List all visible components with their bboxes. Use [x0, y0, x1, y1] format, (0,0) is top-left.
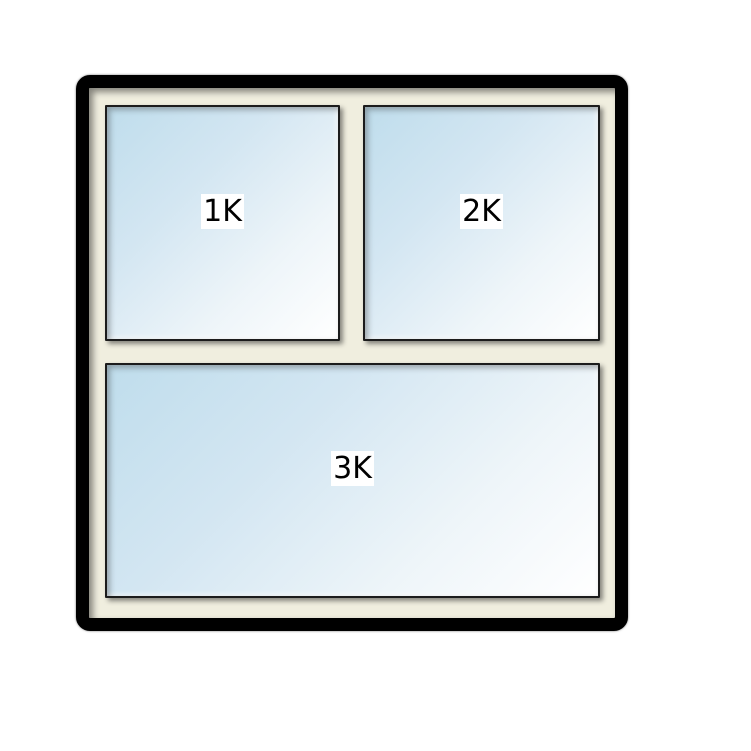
window-frame: 1K 2K 3K	[76, 75, 628, 631]
page-background: 1K 2K 3K	[0, 0, 751, 751]
pane-label-2k: 2K	[460, 194, 503, 229]
window-pane-3k: 3K	[105, 363, 600, 598]
window-pane-2k: 2K	[363, 105, 600, 341]
window-pane-1k: 1K	[105, 105, 340, 341]
pane-label-3k: 3K	[331, 451, 374, 486]
pane-label-1k: 1K	[201, 194, 244, 229]
